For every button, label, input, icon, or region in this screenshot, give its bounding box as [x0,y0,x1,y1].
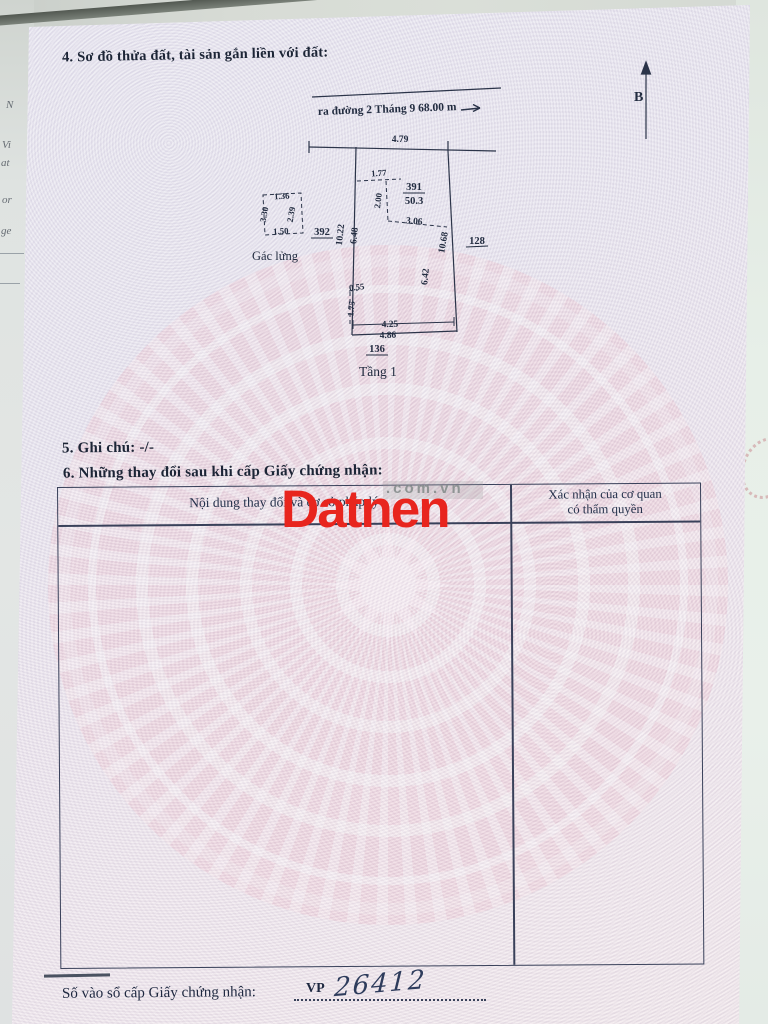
dim-left-inner: 6.48 [349,227,361,245]
dim-notch-h: 1.75 [345,300,357,317]
dim-inner-mid: 3.06 [405,216,423,227]
table-column-divider [510,485,515,965]
road-reference-line [312,88,501,97]
dim-right-inner: 6.42 [420,268,432,286]
dim-inner-left: 2.00 [372,192,384,209]
dim-left-outer: 10.22 [335,223,347,246]
neighbor-parcel-left: 392 [314,227,330,238]
frontage-line [309,147,496,151]
right-boundary [448,151,457,332]
dim-bottom-inner: 4.25 [381,320,398,331]
bottom-inner-line [353,322,454,325]
register-number-label: Số vào sổ cấp Giấy chứng nhận: [62,984,256,1003]
floor-label: Tầng 1 [359,364,397,379]
neighbor-parcel-bottom: 136 [369,344,385,355]
bottom-boundary [352,331,457,335]
changes-table: Nội dung thay đổi và cơ sở pháp lý Xác n… [57,483,704,969]
scanned-land-certificate-page: { "document": { "section4_title": "4. Sơ… [0,0,768,1024]
register-prefix: VP [306,981,325,997]
dim-box-right: 2.39 [285,205,298,222]
watermark-brand-logo: Datnen [281,483,449,536]
dim-box-bottom: 1.50 [273,226,289,237]
register-dotted-line [294,999,486,1001]
dim-frontage: 4.79 [392,135,409,145]
parcel-number: 391 [406,182,422,193]
mezzanine-label: Gác lửng [252,249,299,263]
dim-right-outer: 10.68 [437,231,451,254]
dim-box-left: 3.30 [258,205,271,222]
neighbor-parcel-right: 128 [469,236,485,247]
dim-bottom-outer: 4.86 [379,331,396,342]
dim-notch-w: 0.55 [349,281,366,293]
table-col2-header-line2: có thẩm quyền [510,502,700,519]
table-col2-header: Xác nhận của cơ quan có thẩm quyền [510,487,700,519]
north-label: B [634,90,643,105]
road-label: ra đường 2 Tháng 9 68.00 m [318,101,457,118]
dim-box-top: 1.36 [274,191,290,202]
table-col2-header-line1: Xác nhận của cơ quan [510,487,700,504]
parcel-area: 50.3 [405,196,423,207]
dim-inner-top: 1.77 [371,167,388,178]
